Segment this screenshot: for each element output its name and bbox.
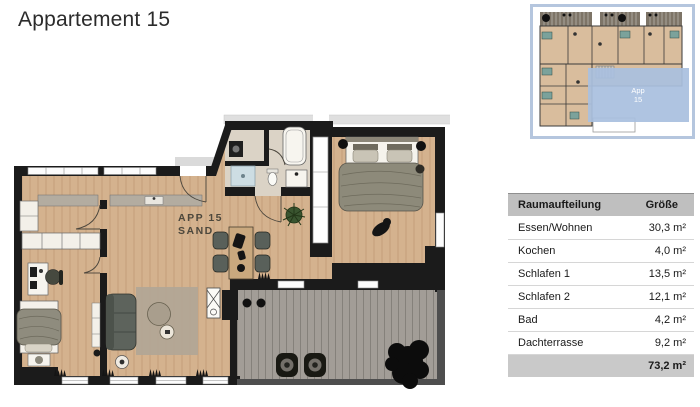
table-header-size: Größe	[646, 199, 678, 211]
svg-text:15: 15	[634, 95, 642, 104]
coffee-table	[148, 303, 171, 326]
table-header-room: Raumaufteilung	[518, 199, 601, 211]
table-header: Raumaufteilung Größe	[508, 194, 694, 217]
table-total-row: 73,2 m²	[508, 355, 694, 377]
page-title: Appartement 15	[18, 8, 170, 32]
table-total: 73,2 m²	[648, 360, 686, 372]
svg-text:SAND: SAND	[178, 225, 214, 237]
floorplan-drawing: APP 15 SAND	[10, 113, 450, 405]
building-overview-thumbnail: App 15	[530, 4, 695, 139]
table-row: Kochen 4,0 m²	[508, 240, 694, 263]
terrace-chair	[276, 353, 298, 377]
mini-roof	[540, 12, 682, 26]
terrace-chair	[304, 353, 326, 377]
room-size-table: Raumaufteilung Größe Essen/Wohnen 30,3 m…	[508, 193, 694, 377]
table-row: Dachterrasse 9,2 m²	[508, 332, 694, 355]
table-row: Bad 4,2 m²	[508, 309, 694, 332]
svg-text:APP 15: APP 15	[178, 212, 223, 224]
shaft-box	[207, 288, 220, 318]
svg-text:App: App	[631, 86, 644, 95]
table-row: Essen/Wohnen 30,3 m²	[508, 217, 694, 240]
office-chair	[46, 270, 61, 285]
wardrobe-row	[22, 233, 100, 249]
table-row: Schlafen 2 12,1 m²	[508, 286, 694, 309]
table-row: Schlafen 1 13,5 m²	[508, 263, 694, 286]
sideboard	[92, 303, 100, 347]
